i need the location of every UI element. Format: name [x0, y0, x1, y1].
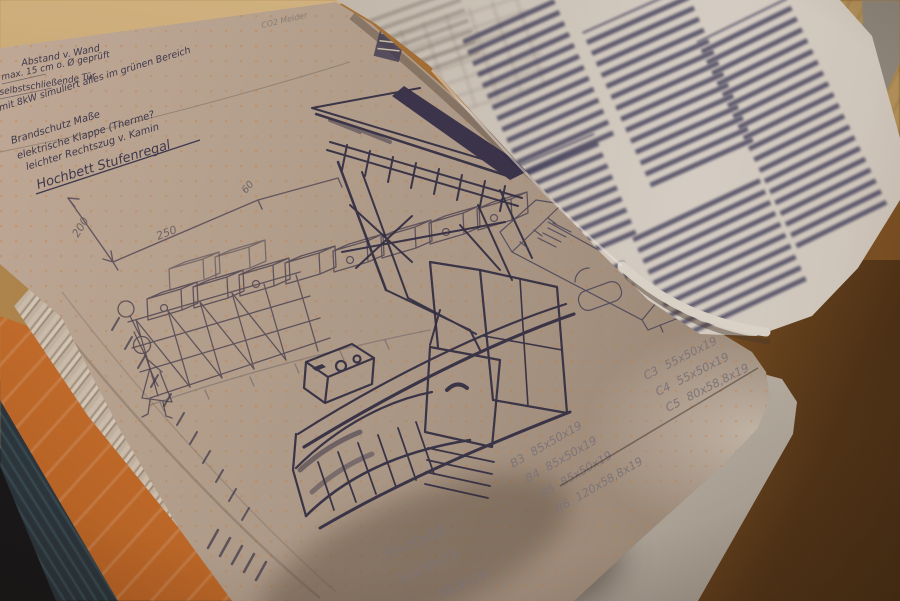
size-label: C3 [641, 363, 661, 382]
co2-note: CO2 Melder [260, 10, 308, 29]
photo-of-sketchbook: Ca. unter Thermometer Max 1,80 m ideal A… [0, 0, 900, 601]
size-label: B5 [538, 481, 558, 501]
dimension-labels: 200 250 60 [70, 179, 257, 243]
size-label: C4 [653, 379, 673, 398]
size-label: B4 [523, 466, 543, 486]
size-label: B6 [553, 496, 573, 516]
scale-figure-sketch [118, 301, 172, 418]
dim-depth: 60 [240, 179, 257, 196]
dim-width: 250 [154, 223, 178, 243]
edge-size-row: 58,8x19 [436, 567, 491, 601]
size-label: C5 [663, 395, 683, 414]
size-label: B3 [508, 451, 528, 471]
counter-sketch [293, 262, 574, 528]
